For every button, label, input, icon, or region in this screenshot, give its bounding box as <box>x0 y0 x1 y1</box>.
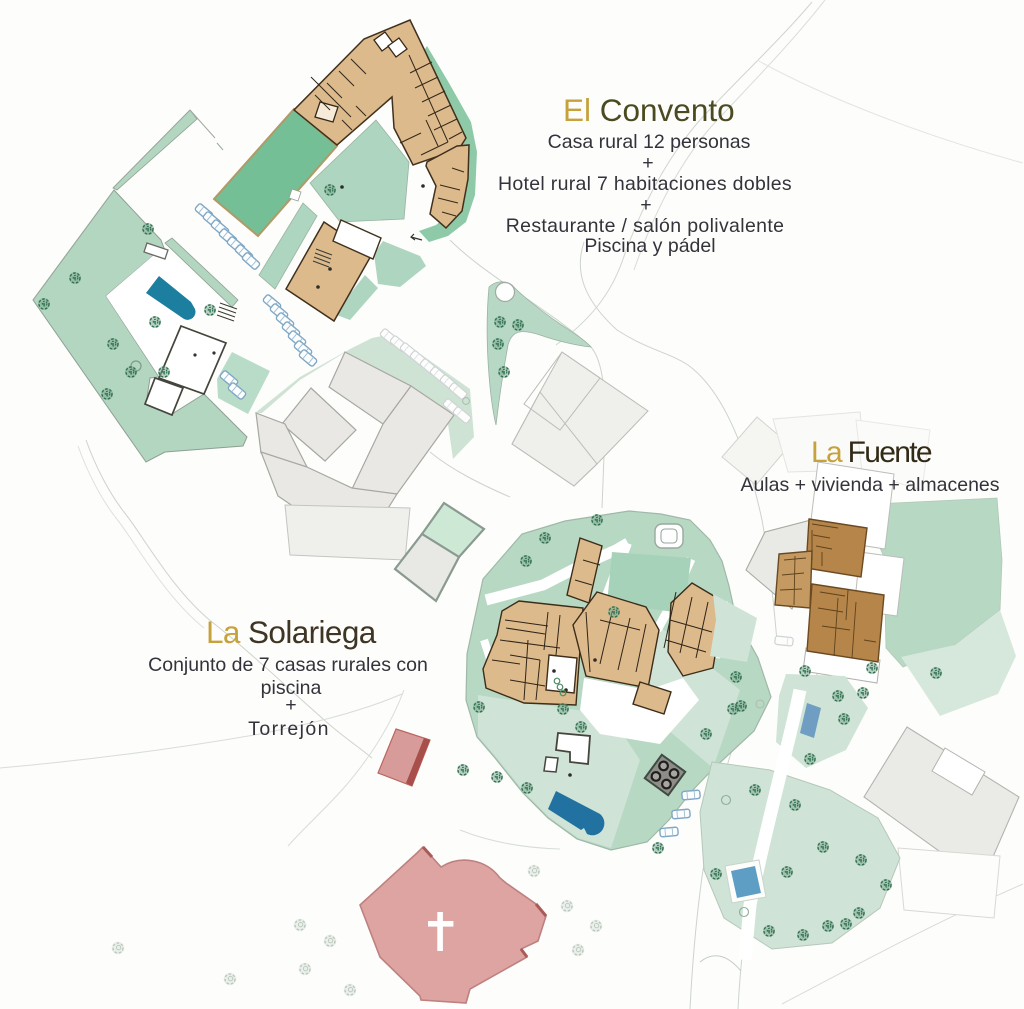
svg-text:+: + <box>642 152 653 174</box>
svg-text:Conjunto de 7 casas rurales co: Conjunto de 7 casas rurales con <box>148 654 428 676</box>
svg-text:Casa rural 12 personas: Casa rural 12 personas <box>548 131 751 153</box>
svg-text:+: + <box>640 194 651 216</box>
svg-text:Hotel rural 7 habitaciones dob: Hotel rural 7 habitaciones dobles <box>498 173 792 195</box>
svg-text:El Convento: El Convento <box>563 92 735 128</box>
svg-text:La Fuente: La Fuente <box>811 436 932 469</box>
svg-text:Piscina y pádel: Piscina y pádel <box>584 235 715 257</box>
svg-text:Restaurante / salón polivalent: Restaurante / salón polivalente <box>506 215 785 237</box>
svg-text:La Solariega: La Solariega <box>206 614 377 650</box>
svg-text:+: + <box>285 694 296 716</box>
svg-text:Aulas + vivienda + almacenes: Aulas + vivienda + almacenes <box>740 474 999 496</box>
svg-text:Torrejón: Torrejón <box>248 718 330 740</box>
